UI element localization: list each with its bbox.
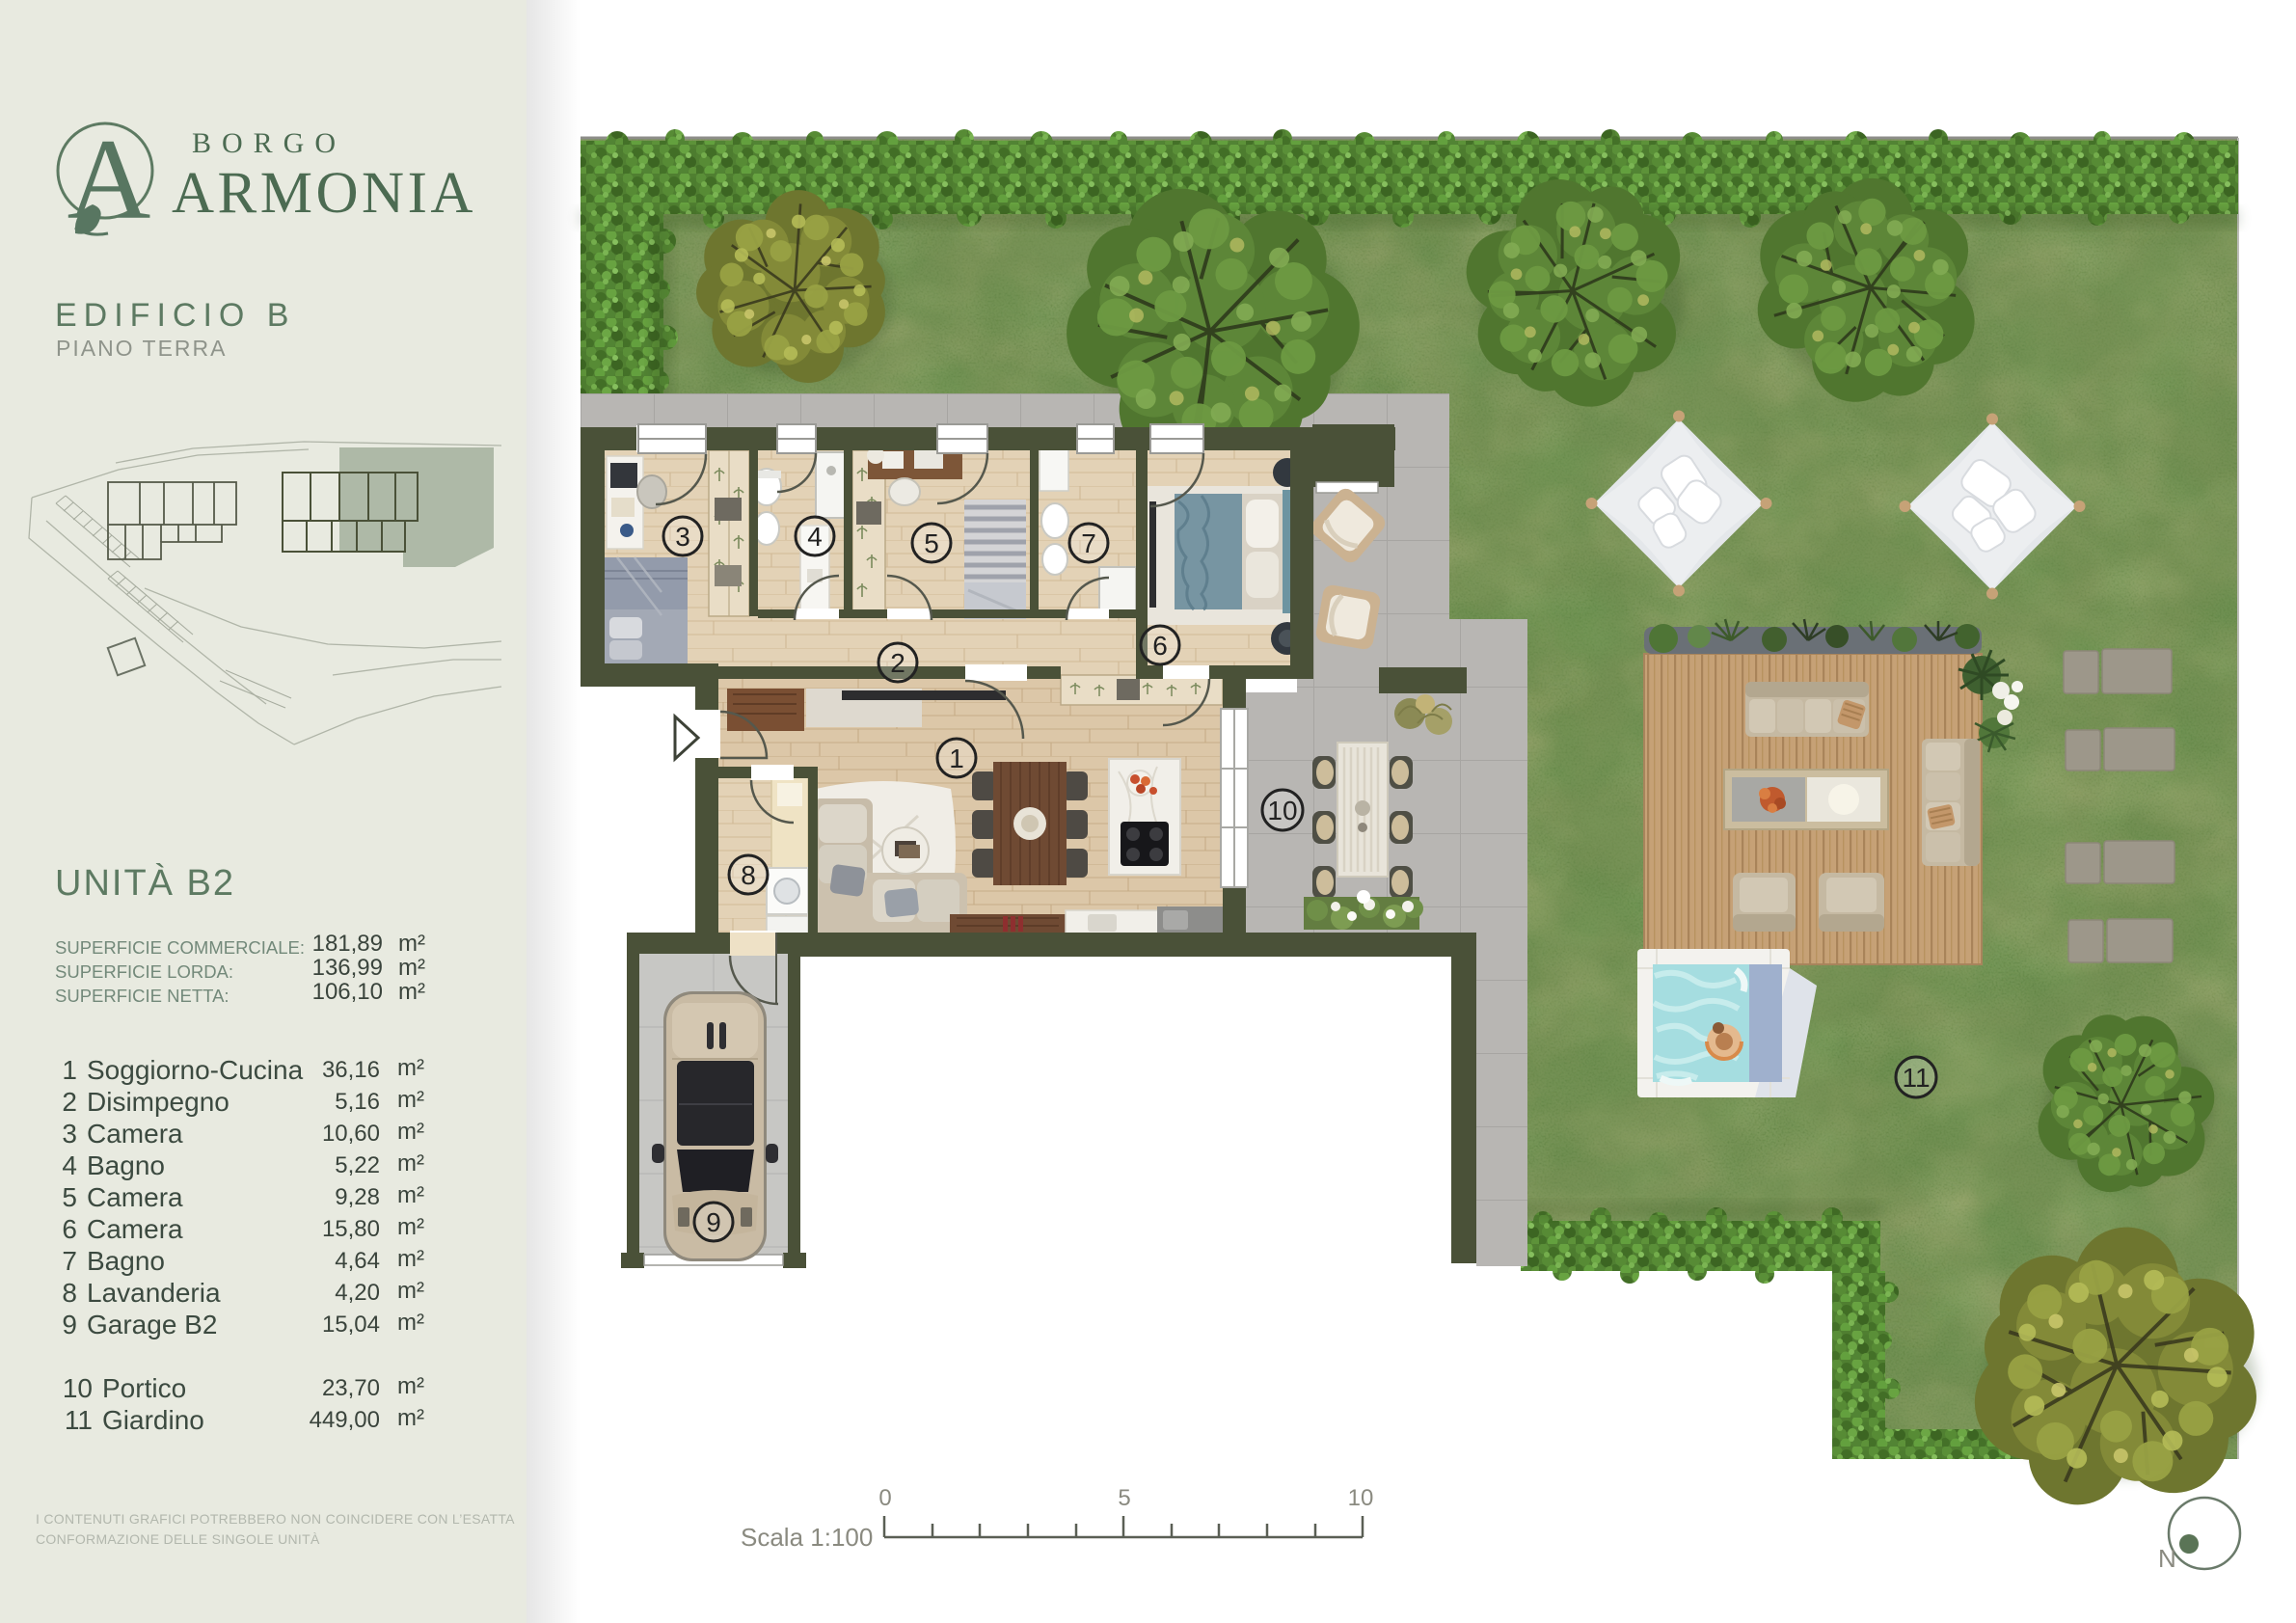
svg-text:8: 8	[62, 1278, 77, 1308]
svg-text:9: 9	[706, 1207, 721, 1237]
svg-text:m²: m²	[397, 1278, 424, 1304]
svg-text:5,22: 5,22	[335, 1152, 380, 1178]
svg-text:7: 7	[62, 1246, 77, 1276]
svg-text:0: 0	[878, 1485, 891, 1511]
svg-text:m²: m²	[397, 1087, 424, 1113]
svg-text:m²: m²	[397, 1246, 424, 1272]
svg-text:m²: m²	[397, 1150, 424, 1177]
svg-text:10: 10	[1348, 1485, 1374, 1511]
svg-text:4,20: 4,20	[335, 1280, 380, 1306]
svg-text:EDIFICIO B: EDIFICIO B	[55, 297, 295, 334]
svg-text:Garage B2: Garage B2	[87, 1310, 217, 1339]
svg-text:Scala 1:100: Scala 1:100	[741, 1523, 873, 1552]
svg-text:CONFORMAZIONE DELLE SINGOLE UN: CONFORMAZIONE DELLE SINGOLE UNITÀ	[36, 1531, 320, 1547]
svg-text:23,70: 23,70	[322, 1375, 380, 1401]
svg-text:SUPERFICIE COMMERCIALE:: SUPERFICIE COMMERCIALE:	[55, 937, 305, 958]
svg-text:ARMONIA: ARMONIA	[172, 161, 476, 226]
svg-text:106,10: 106,10	[312, 979, 383, 1005]
svg-text:136,99: 136,99	[312, 955, 383, 981]
svg-text:Portico: Portico	[102, 1373, 186, 1403]
svg-text:10: 10	[1267, 796, 1297, 825]
svg-text:Bagno: Bagno	[87, 1246, 165, 1276]
svg-text:10,60: 10,60	[322, 1121, 380, 1147]
svg-text:7: 7	[1081, 528, 1096, 558]
svg-text:m²: m²	[397, 1310, 424, 1336]
svg-text:449,00: 449,00	[310, 1407, 380, 1433]
svg-text:SUPERFICIE NETTA:: SUPERFICIE NETTA:	[55, 986, 230, 1006]
svg-text:I CONTENUTI GRAFICI POTREBBERO: I CONTENUTI GRAFICI POTREBBERO NON COINC…	[36, 1511, 515, 1527]
svg-text:m²: m²	[397, 1373, 424, 1399]
svg-text:m²: m²	[397, 1055, 424, 1081]
svg-text:m²: m²	[397, 1405, 424, 1431]
svg-text:6: 6	[1152, 631, 1168, 661]
svg-text:m²: m²	[397, 1182, 424, 1208]
svg-text:4: 4	[807, 522, 823, 552]
svg-text:2: 2	[62, 1087, 77, 1117]
svg-text:BORGO: BORGO	[192, 127, 346, 159]
svg-text:N: N	[2158, 1544, 2176, 1573]
svg-text:5,16: 5,16	[335, 1089, 380, 1115]
svg-text:15,04: 15,04	[322, 1312, 380, 1338]
svg-text:3: 3	[675, 522, 690, 552]
svg-text:9,28: 9,28	[335, 1184, 380, 1210]
svg-text:181,89: 181,89	[312, 931, 383, 957]
svg-text:3: 3	[62, 1119, 77, 1149]
svg-text:8: 8	[741, 860, 756, 890]
svg-text:Giardino: Giardino	[102, 1405, 204, 1435]
svg-text:m²: m²	[398, 931, 425, 957]
svg-text:11: 11	[65, 1405, 93, 1435]
svg-text:Lavanderia: Lavanderia	[87, 1278, 221, 1308]
svg-text:UNITÀ B2: UNITÀ B2	[55, 862, 235, 904]
svg-text:6: 6	[62, 1214, 77, 1244]
svg-text:5: 5	[924, 528, 939, 558]
svg-text:Bagno: Bagno	[87, 1150, 165, 1180]
svg-text:2: 2	[890, 648, 905, 678]
svg-text:PIANO TERRA: PIANO TERRA	[56, 336, 228, 361]
svg-text:5: 5	[62, 1182, 77, 1212]
svg-text:4,64: 4,64	[335, 1248, 380, 1274]
svg-text:m²: m²	[398, 979, 425, 1005]
svg-text:m²: m²	[397, 1119, 424, 1145]
svg-text:Disimpegno: Disimpegno	[87, 1087, 230, 1117]
svg-text:Camera: Camera	[87, 1214, 183, 1244]
svg-text:5: 5	[1118, 1485, 1130, 1511]
svg-text:11: 11	[1902, 1063, 1930, 1093]
svg-text:15,80: 15,80	[322, 1216, 380, 1242]
svg-text:Camera: Camera	[87, 1182, 183, 1212]
svg-text:SUPERFICIE LORDA:: SUPERFICIE LORDA:	[55, 961, 233, 982]
svg-text:10: 10	[63, 1373, 93, 1403]
svg-text:9: 9	[62, 1310, 77, 1339]
svg-text:m²: m²	[398, 955, 425, 981]
svg-text:36,16: 36,16	[322, 1057, 380, 1083]
svg-text:Soggiorno-Cucina: Soggiorno-Cucina	[87, 1055, 304, 1085]
svg-text:Camera: Camera	[87, 1119, 183, 1149]
svg-text:m²: m²	[397, 1214, 424, 1240]
svg-text:1: 1	[62, 1055, 77, 1085]
svg-text:1: 1	[949, 744, 964, 773]
svg-text:4: 4	[62, 1150, 77, 1180]
